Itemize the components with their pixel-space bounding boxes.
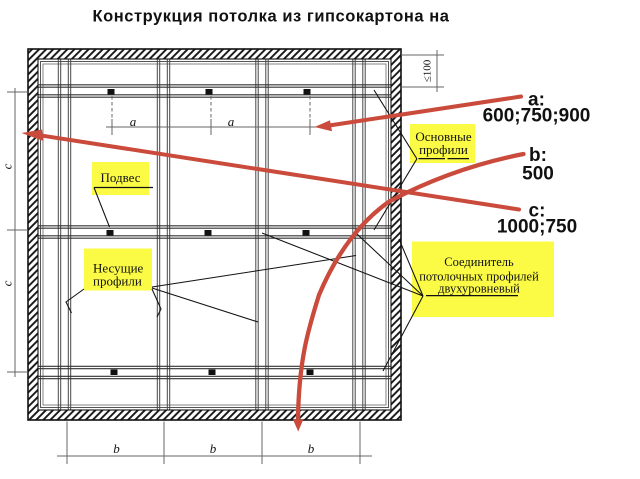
svg-text:1000;750: 1000;750 — [497, 217, 577, 238]
svg-text:Конструкция потолка из гипсока: Конструкция потолка из гипсокартона на — [92, 8, 449, 26]
svg-text:b: b — [210, 441, 217, 456]
svg-text:b: b — [308, 441, 315, 456]
svg-text:600;750;900: 600;750;900 — [483, 105, 591, 126]
svg-text:Соединитель: Соединитель — [444, 255, 514, 269]
svg-text:профили: профили — [419, 142, 468, 157]
svg-text:b: b — [113, 441, 120, 456]
svg-text:Подвес: Подвес — [100, 170, 140, 185]
svg-text:c: c — [0, 280, 15, 286]
svg-text:c: c — [0, 163, 15, 169]
svg-text:a: a — [130, 114, 137, 129]
svg-text:двухуровневый: двухуровневый — [438, 282, 520, 296]
svg-text:≤100: ≤100 — [422, 59, 434, 82]
svg-text:профили: профили — [93, 274, 142, 289]
svg-text:500: 500 — [522, 163, 554, 184]
svg-text:a: a — [228, 114, 235, 129]
